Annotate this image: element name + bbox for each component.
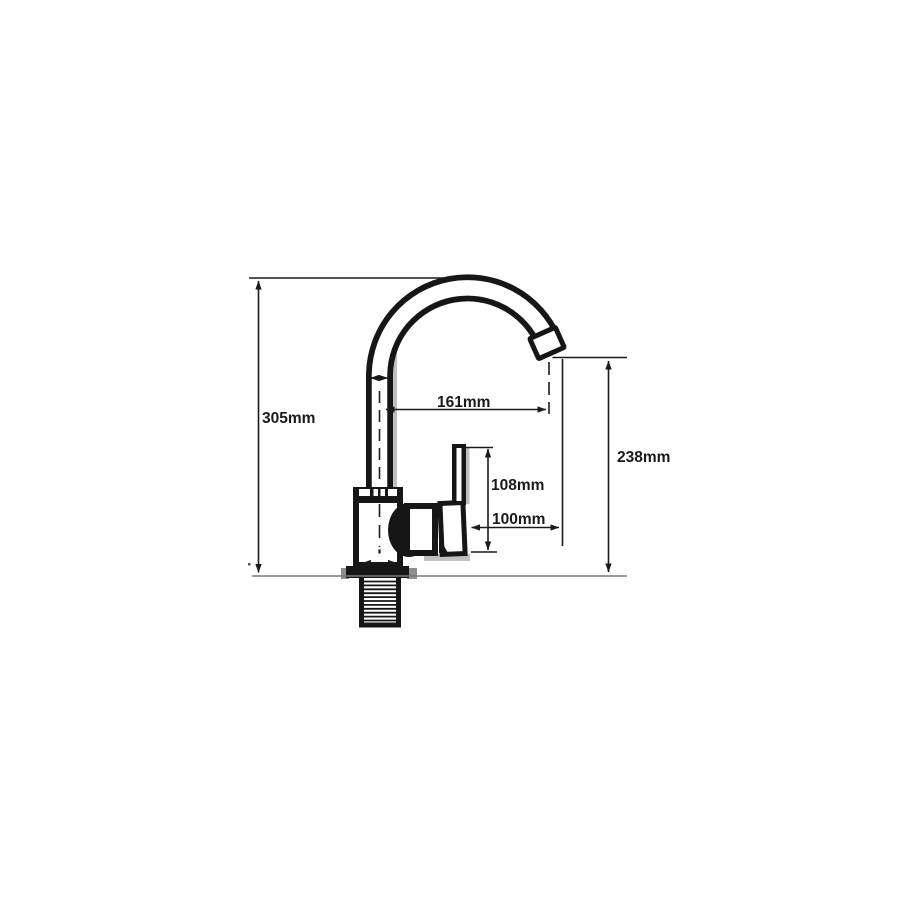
stray-dot [248, 563, 251, 566]
shank-bottom-cap [359, 623, 401, 628]
handle-lever-highlight [457, 448, 462, 501]
label-spout-reach: 161mm [437, 394, 490, 411]
collar-slot-4 [388, 489, 397, 496]
label-total-height: 305mm [262, 410, 315, 427]
valve-connector [407, 506, 435, 553]
faucet-diagram-svg: 305mm 161mm 238mm 108mm 100mm [0, 0, 900, 900]
faucet-technical-drawing: 305mm 161mm 238mm 108mm 100mm [0, 0, 900, 900]
collar-slot-2 [374, 489, 379, 496]
body-centerline-dot [378, 550, 380, 554]
collar-slot-3 [381, 489, 386, 496]
shank-wall-right [396, 578, 401, 627]
label-outlet-height: 238mm [617, 449, 670, 466]
shank-wall-left [359, 578, 364, 627]
label-handle-reach: 100mm [492, 511, 545, 528]
lever-shadow [466, 447, 470, 504]
label-handle-height: 108mm [491, 477, 544, 494]
collar-slot-1 [359, 489, 370, 496]
